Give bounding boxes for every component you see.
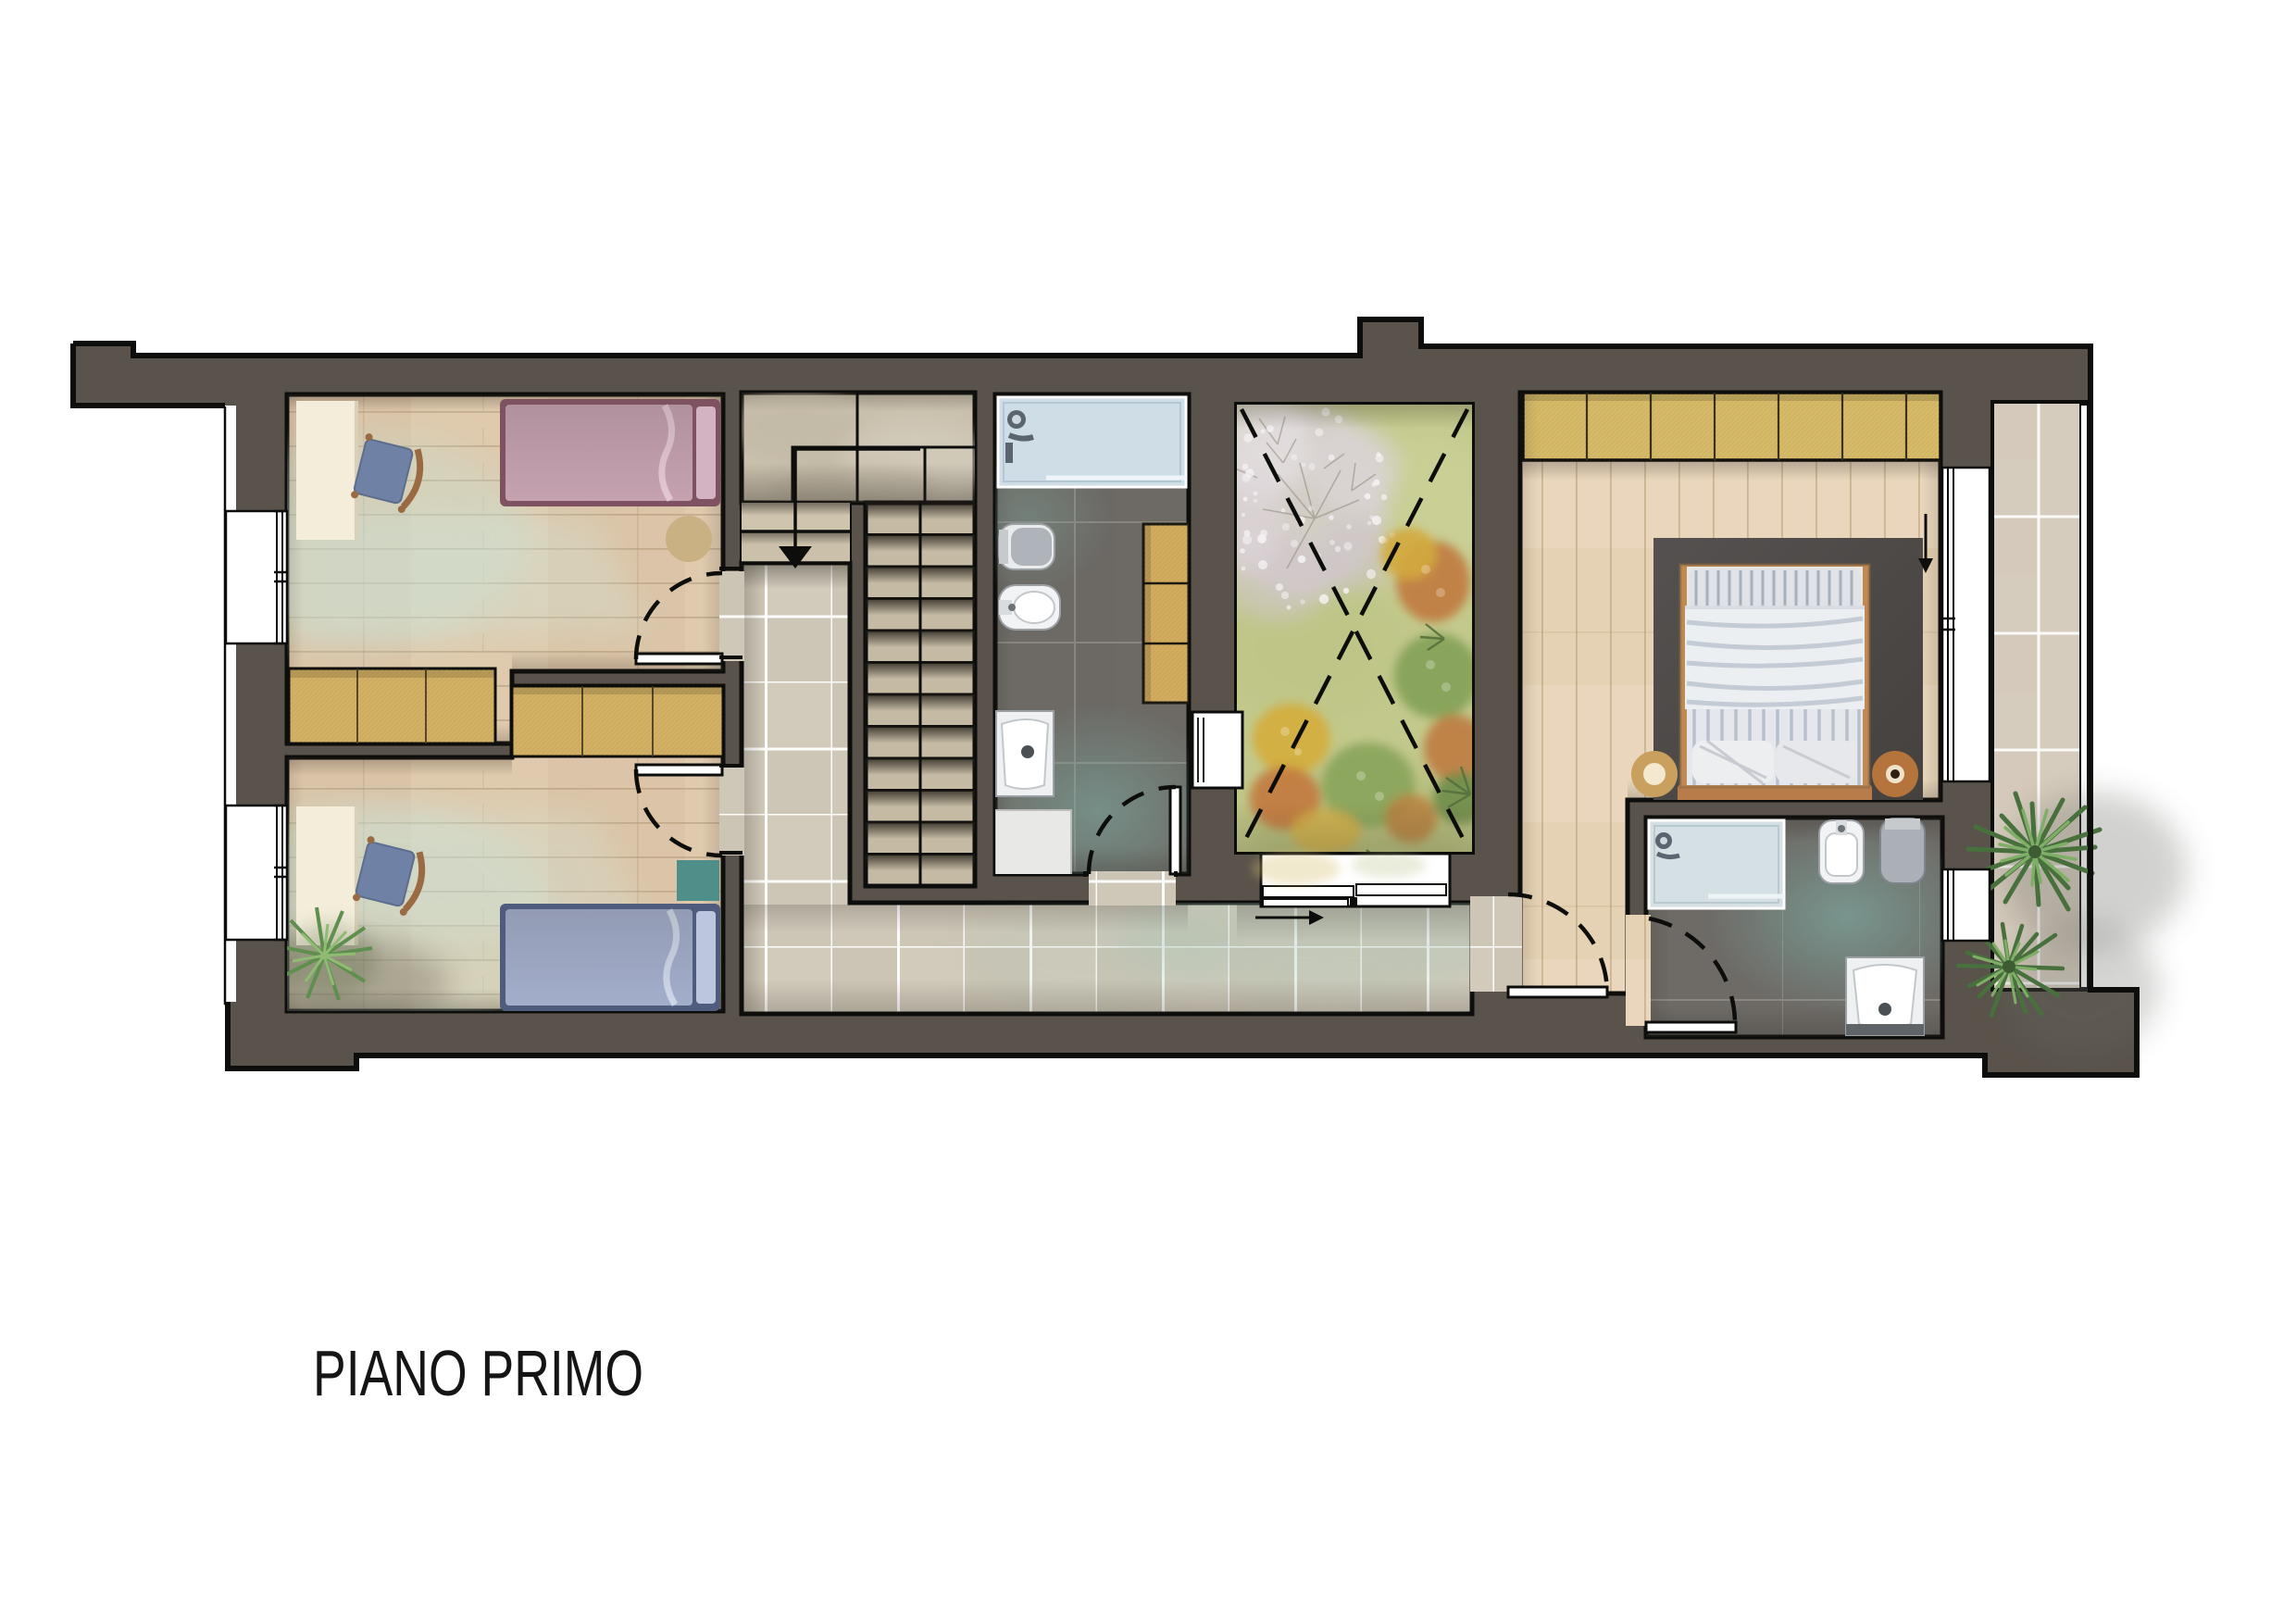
svg-text:PIANO PRIMO: PIANO PRIMO — [313, 1337, 643, 1409]
